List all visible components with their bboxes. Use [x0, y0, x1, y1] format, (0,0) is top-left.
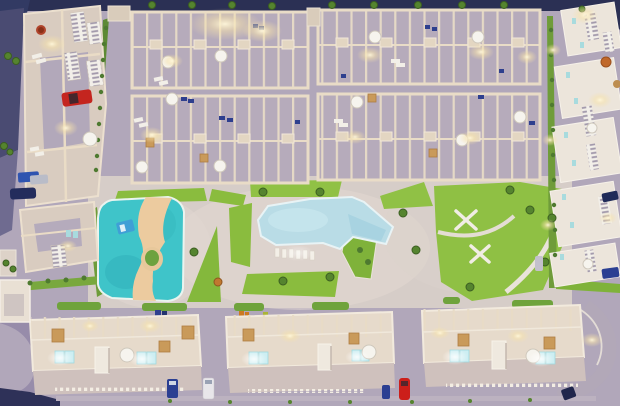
shrub — [410, 400, 414, 404]
tree — [269, 3, 276, 10]
street-lamp-glow — [242, 20, 282, 42]
tree — [149, 2, 156, 9]
balcony-railing-row — [248, 389, 364, 393]
roof-pergola-tan — [458, 334, 469, 346]
roof-pergola — [87, 21, 103, 45]
tree — [1, 143, 8, 150]
tree — [365, 259, 371, 265]
sun-lounger — [396, 63, 405, 67]
shrub — [552, 203, 556, 207]
shrub — [550, 103, 554, 107]
shrub — [99, 90, 103, 94]
patio-umbrella — [369, 31, 381, 43]
sun-lounger — [391, 59, 400, 63]
terrace-structure — [282, 134, 294, 143]
patio-umbrella — [215, 50, 227, 62]
roof-pergola-tan — [52, 329, 64, 342]
shrub — [95, 154, 99, 158]
street-lamp-glow — [430, 327, 450, 339]
stair-bulkhead — [318, 344, 331, 370]
car-navy — [10, 187, 37, 199]
shrub — [28, 281, 33, 286]
street-lamp-glow — [572, 6, 598, 24]
shrub — [528, 398, 532, 402]
terrace-structure — [194, 134, 206, 143]
street-lamp-glow — [161, 54, 183, 68]
tree — [7, 149, 13, 155]
tree — [506, 186, 514, 194]
roof-pergola-tan — [429, 149, 437, 157]
tree — [466, 283, 474, 291]
shrub — [550, 78, 554, 82]
shrub — [552, 178, 556, 182]
skylight-window — [73, 231, 78, 238]
stair-bulkhead — [492, 341, 506, 369]
skylight-glow — [528, 351, 554, 367]
shrub — [468, 399, 472, 403]
street-lamp-glow — [357, 47, 383, 63]
lagoon-shallow-water — [268, 208, 328, 232]
balcony-railing-row — [55, 387, 185, 391]
skylight-window — [572, 160, 576, 166]
skylight-glow — [241, 351, 267, 367]
tree — [412, 246, 420, 254]
tree — [5, 53, 12, 60]
shrub — [553, 253, 557, 257]
street-lamp-glow — [139, 319, 161, 333]
roof-pergola-tan — [182, 326, 194, 339]
rooftop-panel — [227, 118, 233, 122]
shrub — [551, 153, 555, 157]
patio-umbrella — [214, 160, 226, 172]
shrub — [64, 278, 69, 283]
tree — [13, 58, 20, 65]
shrub — [288, 400, 292, 404]
skylight-window — [570, 222, 574, 228]
street-lamp-glow — [81, 320, 99, 332]
aerial-render-viewport — [0, 0, 620, 406]
street-lamp-glow — [545, 44, 561, 56]
street-lamp-glow — [468, 44, 494, 60]
shrub — [549, 28, 553, 32]
balcony-railing-row — [446, 383, 578, 387]
terrace-structure — [512, 132, 524, 141]
tree-autumn — [214, 278, 222, 286]
storage-bin — [155, 310, 161, 316]
car-gray — [30, 174, 49, 184]
street-lamp-glow — [279, 329, 301, 343]
tree — [399, 209, 407, 217]
roof-pergola-tan — [544, 337, 555, 349]
kids-pool-island-green — [145, 250, 159, 266]
tree — [279, 277, 287, 285]
tree — [371, 2, 378, 9]
street-lamp-glow — [54, 120, 78, 136]
rooftop-panel — [181, 97, 187, 101]
street-lamp-glow — [517, 50, 537, 64]
rooftop-panel — [295, 120, 300, 124]
walkway-gate — [108, 6, 130, 21]
hedge-mound — [443, 297, 460, 304]
skylight-glow — [47, 350, 73, 366]
scene-svg — [0, 0, 620, 406]
tree — [316, 188, 324, 196]
street-lamp-glow — [581, 333, 603, 347]
car-blue-small — [382, 385, 390, 399]
patio-umbrella — [136, 161, 148, 173]
skylight-window — [566, 72, 570, 78]
building-stub-west-court — [4, 294, 24, 316]
parasol-orange — [601, 57, 611, 67]
street-lamp-glow — [507, 329, 529, 343]
roof-pergola-tan — [368, 94, 376, 102]
rooftop-panel — [499, 69, 504, 73]
street-lamp-glow — [459, 131, 481, 145]
shrub — [102, 42, 106, 46]
skylight-window — [66, 230, 71, 237]
roof-pergola-tan — [243, 329, 254, 341]
skylight-window — [574, 98, 578, 104]
terrace-structure — [512, 38, 524, 47]
shrub — [100, 74, 104, 78]
rooftop-panel — [478, 95, 484, 99]
hedge-mound — [57, 302, 101, 310]
lawn-patch — [242, 271, 339, 297]
shrub — [46, 279, 51, 284]
sun-lounger — [275, 248, 280, 257]
terrace-structure — [150, 40, 162, 49]
terrace-structure — [380, 132, 392, 141]
rooftop-panel — [188, 99, 194, 103]
tree — [189, 2, 196, 9]
street-lamp-glow — [38, 35, 66, 53]
tree — [326, 273, 334, 281]
building-south-b-facade — [228, 363, 395, 393]
street-lamp-glow — [599, 212, 617, 224]
tree — [501, 2, 508, 9]
pool-deck-glow — [282, 245, 314, 261]
tree — [3, 260, 9, 266]
rooftop-panel — [425, 25, 430, 29]
street-lamp-glow — [540, 219, 556, 231]
tree — [526, 206, 534, 214]
skylight-window — [564, 132, 568, 138]
car-red-windows — [68, 93, 78, 104]
patio-umbrella — [83, 132, 97, 146]
street-lamp-glow — [344, 130, 366, 144]
shrub — [94, 168, 98, 172]
tree — [190, 248, 198, 256]
street-lamp-glow — [542, 134, 558, 146]
patio-umbrella — [587, 123, 597, 133]
shrub — [348, 400, 352, 404]
roof-pergola-tan — [200, 154, 208, 162]
roof-planter — [38, 27, 44, 33]
tree — [229, 2, 236, 9]
van-blue-windshield — [169, 381, 176, 385]
terrace-structure — [238, 40, 250, 49]
terrace-structure — [424, 38, 436, 47]
terrace-structure — [282, 40, 294, 49]
lawn-patch — [229, 203, 252, 267]
car-red-south-windshield — [401, 381, 408, 386]
skylight-window — [562, 194, 566, 200]
shrub — [551, 128, 555, 132]
shrub — [101, 58, 105, 62]
tree — [357, 247, 363, 253]
hedge-mound — [142, 303, 187, 311]
sun-lounger — [334, 119, 343, 123]
shrub — [104, 26, 108, 30]
tree — [10, 266, 16, 272]
terrace-structure — [194, 40, 206, 49]
alley-structure — [307, 8, 320, 26]
patio-umbrella — [351, 96, 363, 108]
hedge-mound — [234, 303, 264, 311]
street-lamp-glow — [588, 92, 612, 108]
stair-bulkhead — [95, 347, 109, 373]
rooftop-panel — [529, 121, 535, 125]
skylight-glow — [442, 349, 468, 365]
hedge-mound — [312, 302, 349, 310]
patio-umbrella — [472, 31, 484, 43]
skylight-window — [560, 254, 564, 260]
patio-umbrella — [514, 111, 526, 123]
patio-umbrella — [166, 93, 178, 105]
rooftop-panel — [432, 27, 437, 31]
terrace-structure — [238, 134, 250, 143]
skylight-glow — [129, 351, 155, 367]
street-lamp-glow — [140, 127, 164, 143]
street-lamp-glow — [59, 240, 77, 252]
tree — [329, 2, 336, 9]
shrub — [97, 122, 101, 126]
terrace-structure — [336, 38, 348, 47]
shrub — [228, 400, 232, 404]
terrace-structure — [424, 132, 436, 141]
car-gray-east — [535, 256, 543, 271]
rooftop-panel — [219, 116, 225, 120]
shrub — [82, 276, 87, 281]
tree — [459, 2, 466, 9]
shrub — [168, 399, 172, 403]
patio-umbrella — [583, 259, 593, 269]
rooftop-panel — [341, 74, 346, 78]
roof-pergola-tan — [159, 341, 170, 352]
tree — [415, 2, 422, 9]
terrace-structure — [380, 38, 392, 47]
shrub — [98, 106, 102, 110]
tree — [259, 188, 267, 196]
skylight-glow — [345, 350, 369, 364]
skylight-window — [580, 42, 584, 48]
roof-pergola-tan — [349, 333, 359, 344]
sidewalk-bottom — [56, 396, 596, 401]
sun-lounger — [339, 123, 348, 127]
van-white-windshield — [205, 380, 212, 384]
